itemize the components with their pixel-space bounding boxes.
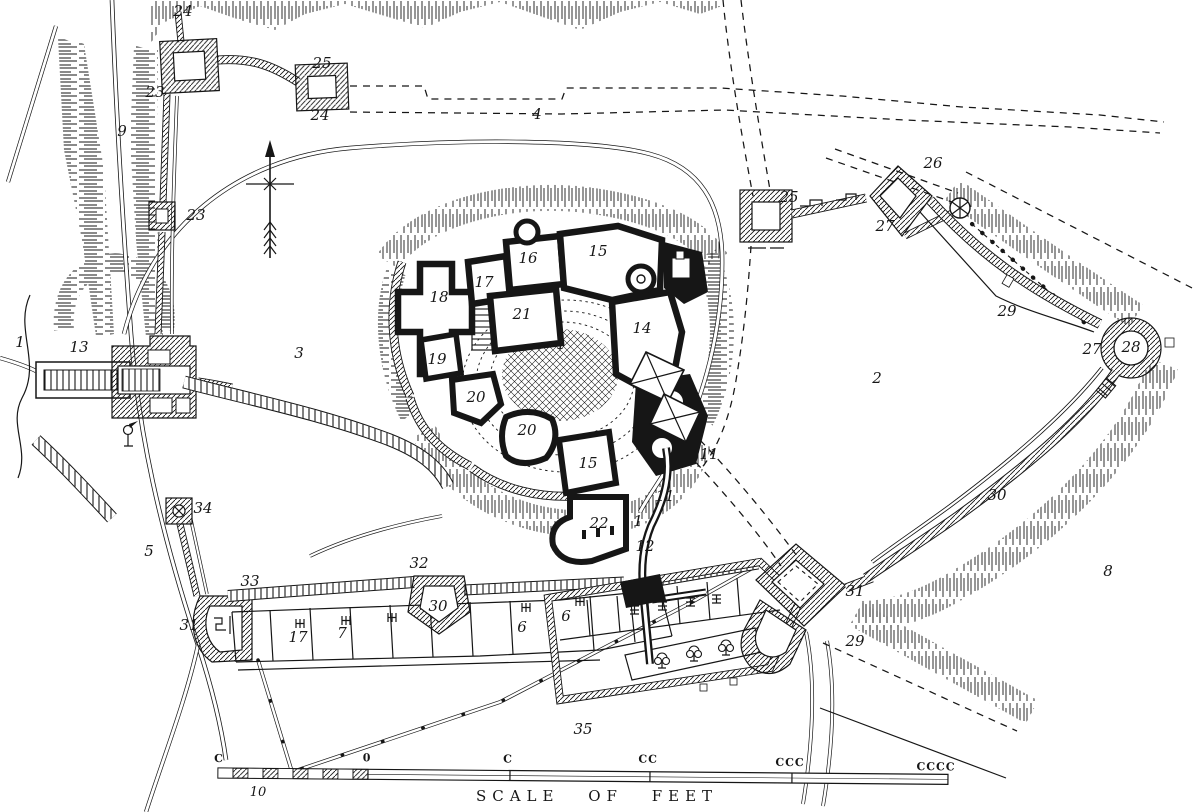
- tower-31-sw: [193, 596, 252, 662]
- plan-linework: [218, 60, 298, 82]
- plan-linework: [129, 421, 138, 428]
- plan-linework: [0, 358, 36, 371]
- plan-linework: [658, 602, 667, 610]
- turret-north: [516, 221, 538, 243]
- map-label: 17: [474, 273, 494, 291]
- map-label: 28: [1120, 338, 1140, 356]
- map-label: 6: [561, 607, 571, 625]
- plan-linework: [1165, 338, 1174, 347]
- map-label: 19: [427, 350, 447, 368]
- map-label: 22: [588, 514, 608, 532]
- plan-linework: [522, 603, 530, 612]
- plan-linework: [723, 0, 753, 196]
- plan-linework: [308, 769, 323, 779]
- scale-caption: SCALE OF FEET: [476, 787, 718, 805]
- map-label: 7: [337, 624, 347, 642]
- plan-linework: [687, 651, 694, 658]
- map-label: 17: [288, 628, 308, 646]
- tower-23: [149, 202, 175, 230]
- map-label: 20: [465, 388, 486, 406]
- plan-linework: [752, 202, 780, 230]
- boundary-line: [820, 708, 1006, 778]
- plan-linework: [233, 768, 248, 778]
- plan-linework: [353, 769, 368, 779]
- plan-linework: [610, 526, 614, 535]
- plan-linework: [741, 0, 770, 190]
- plan-linework: [150, 398, 172, 413]
- road-junction-mass: [620, 574, 666, 608]
- plan-linework: [248, 768, 263, 778]
- castle-plan-canvas: C0CCCCCCCCCC 10 SCALE OF FEET 2425242392…: [0, 0, 1200, 812]
- map-label: 32: [409, 554, 428, 572]
- plan-linework: [293, 769, 308, 779]
- ramp-roads: [36, 382, 448, 518]
- map-label: 29: [844, 632, 865, 650]
- plan-linework: [36, 440, 112, 518]
- plan-linework: [308, 76, 337, 99]
- plan-linework: [872, 368, 1102, 562]
- tower-34: [166, 498, 192, 524]
- scale-tick-label: CCCC: [916, 760, 955, 773]
- plan-linework: [150, 0, 722, 44]
- scale-tick-label: 0: [363, 751, 372, 764]
- south-terrace: [228, 564, 758, 596]
- map-label: 11: [699, 445, 718, 463]
- scale-tick-label: C: [503, 752, 513, 765]
- map-label: 24: [309, 106, 329, 124]
- map-label: 34: [193, 499, 212, 517]
- plan-linework: [323, 769, 338, 779]
- plan-linework: [872, 368, 1102, 562]
- scale-tick-label: C: [214, 752, 224, 765]
- gatehouse-13: [36, 336, 232, 418]
- map-label: 35: [573, 720, 592, 738]
- plan-linework: [124, 434, 133, 446]
- plan-linework: [173, 51, 205, 81]
- plan-linework: [872, 368, 1102, 562]
- map-label: 25: [311, 54, 331, 72]
- plan-linework: [265, 140, 275, 157]
- map-label: 1: [15, 333, 25, 351]
- map-label: 12: [635, 537, 654, 555]
- map-label: 5: [144, 542, 154, 560]
- scale-sub-label: 10: [250, 785, 267, 800]
- map-label: 1: [633, 512, 643, 530]
- plan-linework: [730, 678, 737, 685]
- map-label: 9: [117, 122, 127, 140]
- plan-linework: [655, 658, 662, 665]
- plan-linework: [278, 769, 293, 779]
- map-label: 33: [240, 572, 259, 590]
- map-label: 13: [69, 338, 88, 356]
- stream-line: [17, 295, 30, 478]
- map-label: 31: [845, 582, 864, 600]
- top-scrub-band: [150, 0, 722, 44]
- plan-linework: [350, 86, 1164, 122]
- plan-linework: [582, 530, 586, 539]
- plan-linework: [672, 258, 690, 278]
- plan-linework: [310, 516, 442, 556]
- plan-linework: [176, 398, 190, 413]
- tower-24: [160, 39, 220, 94]
- castle-plan-figure: C0CCCCCCCCCC 10 SCALE OF FEET 2425242392…: [0, 0, 1200, 812]
- map-label: 27: [874, 217, 895, 235]
- map-label: 21: [511, 305, 531, 323]
- plan-linework: [700, 684, 707, 691]
- plan-linework: [719, 645, 726, 652]
- map-label: 23: [144, 83, 164, 101]
- map-label: 26: [922, 154, 943, 172]
- stair-block: [472, 302, 492, 350]
- flag-tree-icon: [124, 421, 139, 446]
- plan-linework: [338, 769, 353, 779]
- map-label: 16: [518, 249, 538, 267]
- plan-linework: [122, 369, 160, 391]
- map-label: 15: [578, 454, 597, 472]
- plan-linework: [637, 275, 645, 283]
- map-label: 3: [294, 344, 304, 362]
- map-label: 25: [778, 188, 798, 206]
- plan-linework: [862, 364, 1164, 616]
- plan-linework: [695, 651, 702, 658]
- scale-tick-label: CCC: [775, 756, 804, 769]
- map-label: 1: [556, 335, 566, 353]
- map-label: 4: [531, 105, 542, 123]
- map-label: 31: [179, 616, 198, 634]
- plan-linework: [727, 645, 734, 652]
- plan-linework: [388, 613, 396, 622]
- turret-26: [950, 198, 970, 218]
- plan-linework: [350, 110, 1160, 133]
- map-label: 14: [632, 319, 651, 337]
- map-label: 24: [172, 2, 192, 20]
- map-label: 18: [429, 288, 448, 306]
- plan-linework: [8, 26, 56, 182]
- map-label: 30: [987, 486, 1007, 504]
- map-label: 20: [516, 421, 537, 439]
- map-label: 29: [996, 302, 1017, 320]
- map-label: 8: [1103, 562, 1113, 580]
- plan-linework: [238, 660, 600, 670]
- plan-linework: [296, 619, 304, 628]
- map-label: 11: [655, 487, 674, 505]
- east-curtain: [740, 166, 1174, 578]
- scale-tick-label: CC: [638, 753, 658, 766]
- plan-linework: [258, 660, 292, 772]
- map-label: 27: [1081, 340, 1102, 358]
- plan-linework: [148, 350, 170, 364]
- plan-linework: [676, 251, 684, 259]
- north-arrow: [246, 140, 294, 258]
- map-label: 2: [871, 369, 882, 387]
- scale-bar: C0CCCCCCCCCC: [214, 749, 956, 784]
- map-label: 15: [588, 242, 607, 260]
- map-label: 6: [517, 618, 527, 636]
- plan-linework: [263, 768, 278, 778]
- plan-linework: [156, 209, 168, 223]
- map-label: 23: [185, 206, 205, 224]
- plan-linework: [872, 368, 1102, 562]
- plan-linework: [218, 768, 233, 778]
- plan-linework: [712, 595, 721, 603]
- plan-linework: [310, 516, 442, 556]
- plan-linework: [663, 658, 670, 665]
- map-label: 30: [428, 597, 448, 615]
